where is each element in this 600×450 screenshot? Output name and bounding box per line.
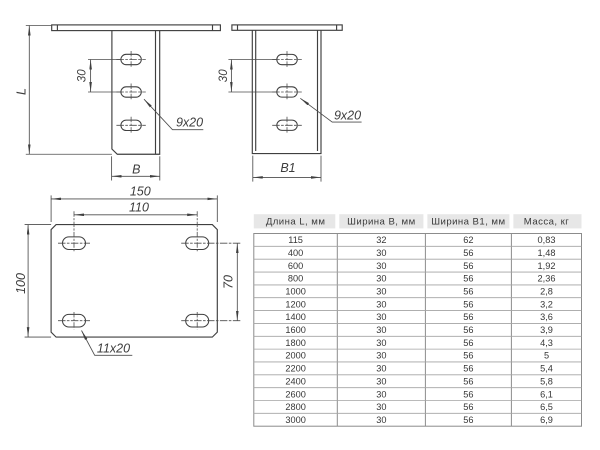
svg-text:9х20: 9х20 xyxy=(176,115,203,129)
svg-text:2400: 2400 xyxy=(285,376,305,386)
svg-text:1,48: 1,48 xyxy=(538,248,556,258)
svg-text:3,6: 3,6 xyxy=(540,312,553,322)
svg-text:2000: 2000 xyxy=(285,351,305,361)
svg-text:2,8: 2,8 xyxy=(540,287,553,297)
svg-text:11х20: 11х20 xyxy=(97,341,130,355)
svg-text:800: 800 xyxy=(288,274,303,284)
svg-text:56: 56 xyxy=(463,376,473,386)
svg-text:5: 5 xyxy=(544,351,549,361)
svg-text:Длина L, мм: Длина L, мм xyxy=(266,217,326,228)
svg-text:30: 30 xyxy=(376,389,386,399)
svg-text:1400: 1400 xyxy=(285,312,305,322)
svg-text:30: 30 xyxy=(376,312,386,322)
svg-text:B1: B1 xyxy=(280,161,295,175)
svg-text:Ширина B, мм: Ширина B, мм xyxy=(347,217,415,228)
svg-text:56: 56 xyxy=(463,248,473,258)
svg-text:56: 56 xyxy=(463,415,473,425)
svg-text:30: 30 xyxy=(376,376,386,386)
svg-text:6,1: 6,1 xyxy=(540,389,553,399)
svg-text:56: 56 xyxy=(463,274,473,284)
svg-text:5,8: 5,8 xyxy=(540,376,553,386)
svg-text:30: 30 xyxy=(218,69,230,82)
svg-text:9х20: 9х20 xyxy=(334,108,361,122)
svg-text:B: B xyxy=(132,162,140,176)
svg-text:L: L xyxy=(15,88,29,95)
svg-text:56: 56 xyxy=(463,351,473,361)
svg-text:2200: 2200 xyxy=(285,364,305,374)
svg-text:1200: 1200 xyxy=(285,299,305,309)
svg-text:30: 30 xyxy=(376,351,386,361)
svg-text:30: 30 xyxy=(376,402,386,412)
svg-text:56: 56 xyxy=(463,389,473,399)
svg-text:30: 30 xyxy=(376,248,386,258)
svg-text:30: 30 xyxy=(376,287,386,297)
svg-text:100: 100 xyxy=(14,273,28,294)
svg-text:Ширина B1, мм: Ширина B1, мм xyxy=(431,217,505,228)
svg-text:2,36: 2,36 xyxy=(538,274,556,284)
svg-text:30: 30 xyxy=(76,69,88,82)
svg-text:1,92: 1,92 xyxy=(538,261,556,271)
svg-text:30: 30 xyxy=(376,338,386,348)
svg-text:30: 30 xyxy=(376,325,386,335)
svg-text:56: 56 xyxy=(463,402,473,412)
svg-text:56: 56 xyxy=(463,261,473,271)
svg-text:56: 56 xyxy=(463,312,473,322)
svg-text:110: 110 xyxy=(129,200,149,214)
svg-text:70: 70 xyxy=(221,275,235,289)
svg-text:400: 400 xyxy=(288,248,303,258)
svg-text:30: 30 xyxy=(376,415,386,425)
svg-text:30: 30 xyxy=(376,299,386,309)
svg-text:Масса, кг: Масса, кг xyxy=(524,217,569,228)
svg-text:3,2: 3,2 xyxy=(540,299,553,309)
svg-text:30: 30 xyxy=(376,261,386,271)
svg-text:115: 115 xyxy=(288,235,303,245)
svg-text:30: 30 xyxy=(376,364,386,374)
svg-text:4,3: 4,3 xyxy=(540,338,553,348)
svg-text:1000: 1000 xyxy=(285,287,305,297)
svg-text:56: 56 xyxy=(463,287,473,297)
svg-text:1600: 1600 xyxy=(285,325,305,335)
svg-text:56: 56 xyxy=(463,325,473,335)
svg-text:150: 150 xyxy=(130,185,151,199)
svg-text:600: 600 xyxy=(288,261,303,271)
svg-text:62: 62 xyxy=(463,235,473,245)
svg-text:1800: 1800 xyxy=(285,338,305,348)
svg-text:2600: 2600 xyxy=(285,389,305,399)
svg-text:2800: 2800 xyxy=(285,402,305,412)
svg-text:30: 30 xyxy=(376,274,386,284)
svg-text:6,9: 6,9 xyxy=(540,415,553,425)
svg-text:56: 56 xyxy=(463,338,473,348)
svg-text:0,83: 0,83 xyxy=(538,235,556,245)
svg-text:56: 56 xyxy=(463,364,473,374)
svg-text:56: 56 xyxy=(463,299,473,309)
svg-text:32: 32 xyxy=(376,235,386,245)
svg-text:6,5: 6,5 xyxy=(540,402,553,412)
svg-text:3000: 3000 xyxy=(285,415,305,425)
svg-text:3,9: 3,9 xyxy=(540,325,553,335)
svg-text:5,4: 5,4 xyxy=(540,364,553,374)
